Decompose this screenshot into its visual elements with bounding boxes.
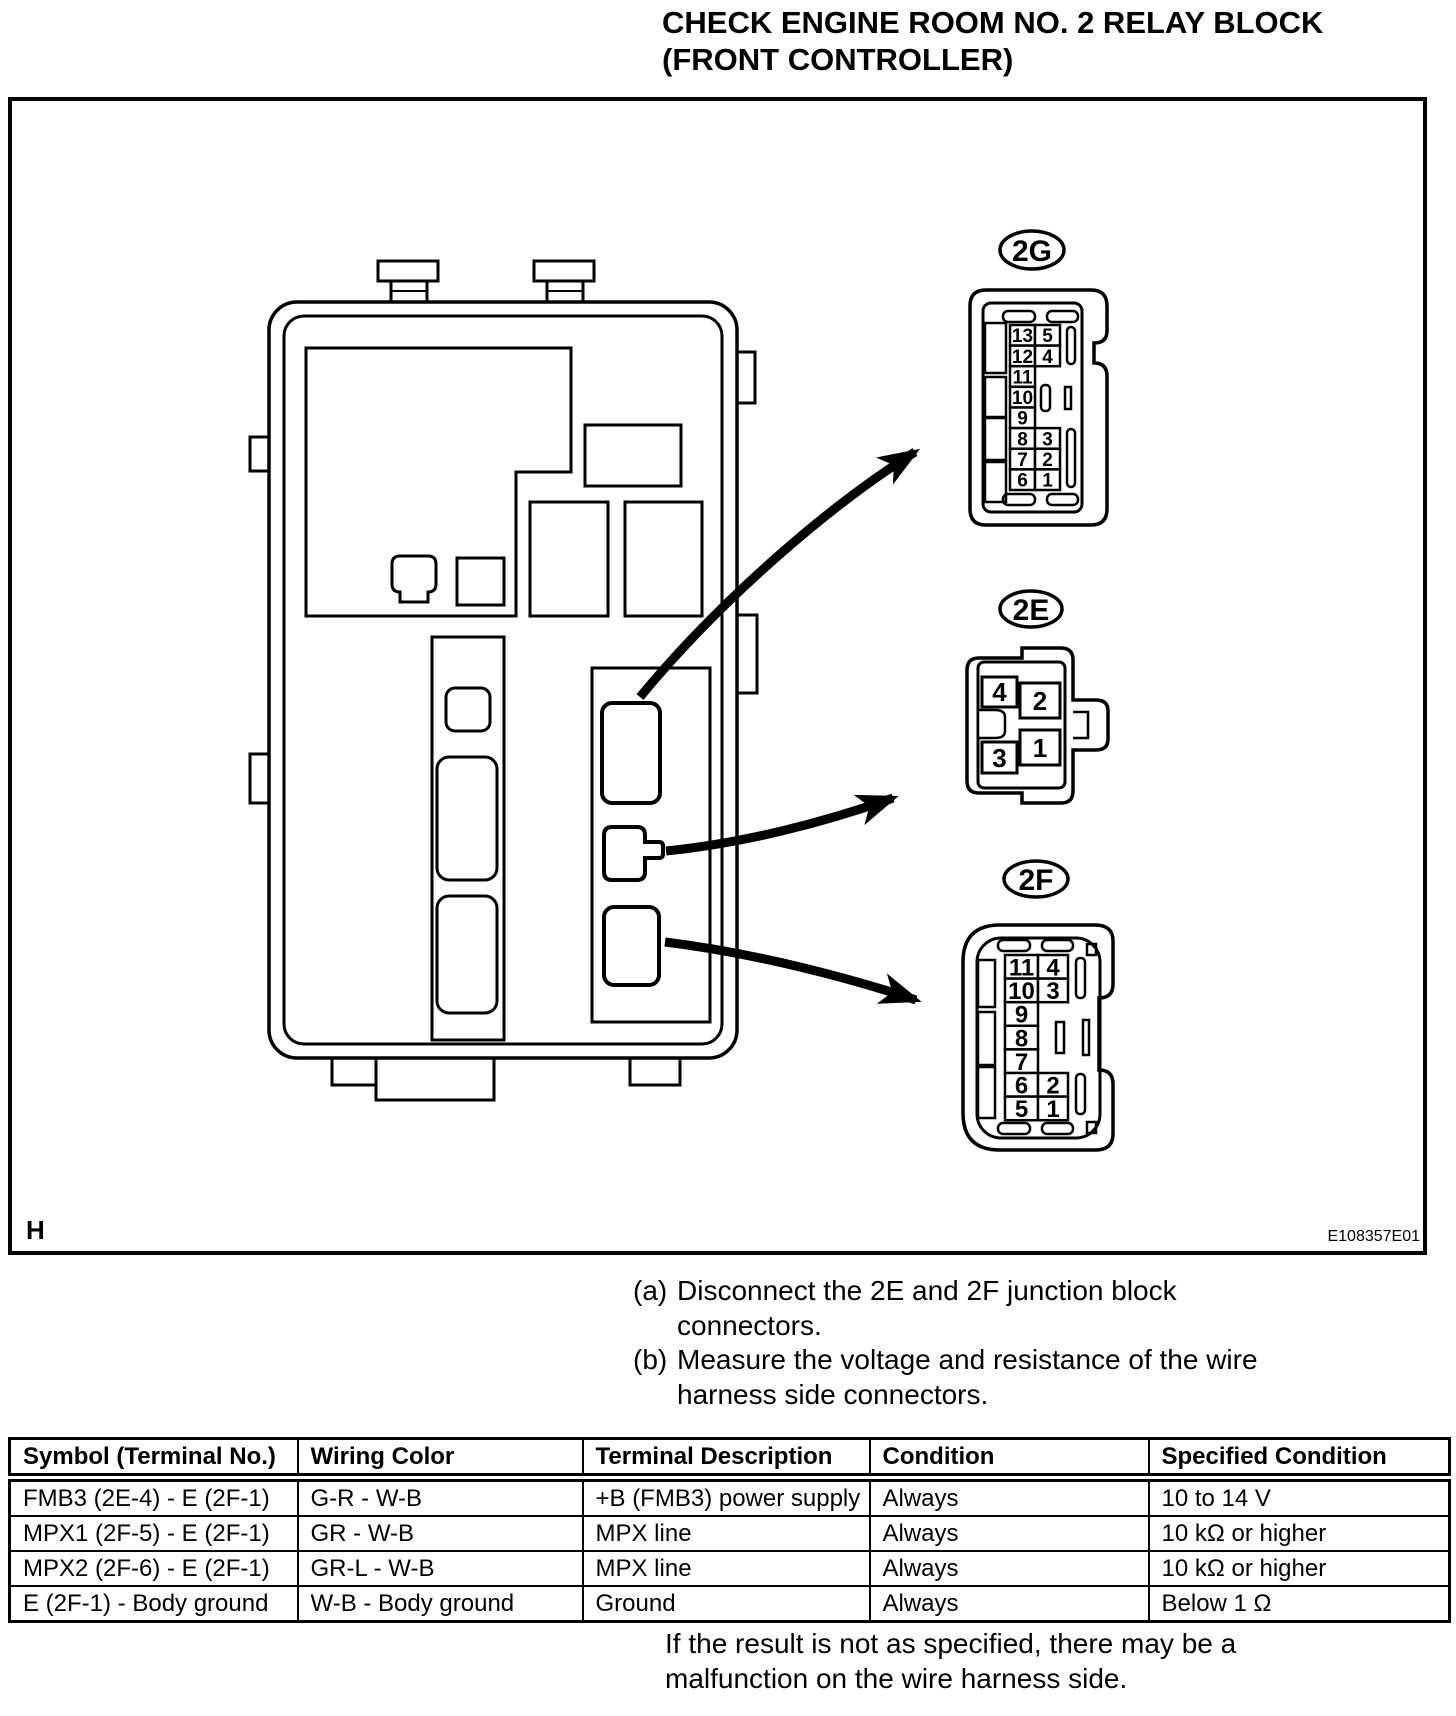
pin-number: 13	[1012, 326, 1033, 347]
col-header-condition: Condition	[870, 1439, 1149, 1478]
connector-2e: 2E 4 2 3 1	[967, 591, 1108, 803]
cell-wiring-color: G-R - W-B	[298, 1478, 583, 1517]
arrows	[640, 452, 916, 1000]
pin-number: 4	[1042, 347, 1053, 368]
step-b-line-1: (b) Measure the voltage and resistance o…	[633, 1343, 1258, 1378]
relay-cavity	[530, 502, 608, 616]
arrow-to-2g	[640, 452, 915, 697]
table-header-row: Symbol (Terminal No.) Wiring Color Termi…	[10, 1439, 1450, 1478]
slot	[1083, 1020, 1089, 1055]
connector-2e-socket-detail	[1073, 712, 1088, 738]
cell-condition: Always	[870, 1478, 1149, 1517]
table-row: FMB3 (2E-4) - E (2F-1) G-R - W-B +B (FMB…	[10, 1478, 1450, 1517]
col-header-symbol: Symbol (Terminal No.)	[10, 1439, 298, 1478]
pin-number: 6	[1017, 471, 1028, 492]
cell-specified-condition: 10 kΩ or higher	[1149, 1551, 1450, 1586]
slot	[1047, 494, 1078, 505]
pin-number: 12	[1012, 347, 1033, 368]
relay-cavity-small	[392, 556, 436, 602]
table-row: MPX1 (2F-5) - E (2F-1) GR - W-B MPX line…	[10, 1516, 1450, 1551]
connector-2g-label: 2G	[1012, 235, 1052, 268]
slot	[1067, 429, 1075, 487]
relay-block-side-tab	[737, 615, 757, 693]
relay-block-side-tab	[250, 437, 269, 471]
connector-2e-label: 2E	[1013, 594, 1050, 627]
col-header-specified-condition: Specified Condition	[1149, 1439, 1450, 1478]
relay-cavity	[625, 502, 702, 616]
connector-2g-pin-grid: 13 12 11 10 9 8 7 6 5 4 3 2 1	[1010, 325, 1060, 492]
cell-wiring-color: GR-L - W-B	[298, 1551, 583, 1586]
cell-condition: Always	[870, 1586, 1149, 1622]
col-header-terminal-description: Terminal Description	[583, 1439, 870, 1478]
cell-condition: Always	[870, 1516, 1149, 1551]
step-a-text: connectors.	[677, 1309, 822, 1344]
relay-block	[250, 261, 757, 1100]
cell-symbol: E (2F-1) - Body ground	[10, 1586, 298, 1622]
connector-2f-pin-grid: 11 10 9 8 7 6 5 4 3 2 1	[1005, 955, 1068, 1124]
relay-socket-2e	[604, 827, 663, 880]
slot	[998, 1123, 1030, 1134]
figure-frame	[10, 99, 1425, 1253]
cell-terminal-description: MPX line	[583, 1516, 870, 1551]
cell-symbol: FMB3 (2E-4) - E (2F-1)	[10, 1478, 298, 1517]
slot	[1076, 1074, 1085, 1114]
slot	[978, 1067, 995, 1118]
cell-terminal-description: +B (FMB3) power supply	[583, 1478, 870, 1517]
relay-cavity	[585, 425, 681, 486]
figure-code: E108357E01	[1327, 1228, 1420, 1245]
cell-terminal-description: MPX line	[583, 1551, 870, 1586]
step-b-line-2: harness side connectors.	[633, 1378, 1258, 1413]
relay-block-top-tab	[534, 261, 594, 302]
relay-block-bottom-tab	[376, 1058, 494, 1100]
pin-number: 8	[1017, 429, 1028, 450]
step-a-line-2: connectors.	[633, 1309, 1258, 1344]
pin-number: 1	[1033, 733, 1047, 763]
cell-condition: Always	[870, 1551, 1149, 1586]
relay-center-strip	[432, 637, 504, 1040]
connector-2f: 2F	[963, 861, 1113, 1150]
slot	[1065, 387, 1071, 409]
slot	[985, 323, 1006, 373]
arrow-to-2f	[665, 942, 916, 1000]
pin-number: 4	[992, 677, 1007, 707]
relay-socket-2g	[602, 703, 660, 803]
slot	[978, 1012, 995, 1065]
step-a-line-1: (a) Disconnect the 2E and 2F junction bl…	[633, 1274, 1258, 1309]
slot	[1042, 940, 1073, 951]
slot	[1076, 958, 1085, 998]
figure-corner-label: H	[26, 1215, 45, 1245]
cell-specified-condition: 10 kΩ or higher	[1149, 1516, 1450, 1551]
note-line-2: malfunction on the wire harness side.	[665, 1661, 1236, 1696]
manual-page: CHECK ENGINE ROOM NO. 2 RELAY BLOCK (FRO…	[0, 0, 1456, 1716]
cell-wiring-color: W-B - Body ground	[298, 1586, 583, 1622]
slot	[1042, 1123, 1073, 1134]
col-header-wiring-color: Wiring Color	[298, 1439, 583, 1478]
relay-block-top-tab	[378, 261, 438, 302]
table-row: MPX2 (2F-6) - E (2F-1) GR-L - W-B MPX li…	[10, 1551, 1450, 1586]
relay-block-side-tab	[250, 754, 269, 803]
relay-cavity-small	[457, 558, 504, 605]
cell-symbol: MPX2 (2F-6) - E (2F-1)	[10, 1551, 298, 1586]
step-b-text: Measure the voltage and resistance of th…	[677, 1343, 1258, 1378]
slot	[985, 418, 1006, 460]
slot	[1047, 311, 1078, 322]
connector-2e-key-notch	[978, 710, 1005, 738]
slot	[1003, 311, 1035, 322]
slot	[985, 377, 1006, 417]
pin-number: 3	[1046, 978, 1059, 1005]
pin-number: 9	[1017, 409, 1028, 430]
pin-number: 7	[1017, 450, 1028, 471]
arrow-to-2e	[666, 798, 893, 851]
step-a-marker: (a)	[633, 1274, 677, 1309]
step-a-text: Disconnect the 2E and 2F junction block	[677, 1274, 1177, 1309]
procedure-steps: (a) Disconnect the 2E and 2F junction bl…	[633, 1274, 1258, 1412]
cell-specified-condition: Below 1 Ω	[1149, 1586, 1450, 1622]
pin-number: 10	[1012, 388, 1033, 409]
pin-number: 5	[1015, 1096, 1028, 1123]
pin-number: 5	[1042, 326, 1053, 347]
pin-number: 11	[1012, 367, 1033, 388]
connector-2g: 2G	[970, 231, 1107, 525]
step-b-marker: (b)	[633, 1343, 677, 1378]
spec-table: Symbol (Terminal No.) Wiring Color Termi…	[8, 1437, 1451, 1623]
pin-number: 1	[1042, 471, 1053, 492]
cell-wiring-color: GR - W-B	[298, 1516, 583, 1551]
relay-socket-2f	[604, 907, 659, 985]
table-row: E (2F-1) - Body ground W-B - Body ground…	[10, 1586, 1450, 1622]
slot	[1003, 494, 1035, 505]
note-line-1: If the result is not as specified, there…	[665, 1626, 1236, 1661]
slot	[1056, 1022, 1064, 1053]
relay-block-bottom-tab	[630, 1058, 680, 1085]
step-b-text: harness side connectors.	[677, 1378, 988, 1413]
cell-specified-condition: 10 to 14 V	[1149, 1478, 1450, 1517]
slot	[998, 940, 1030, 951]
cell-terminal-description: Ground	[583, 1586, 870, 1622]
relay-block-side-tab	[737, 352, 755, 403]
slot	[1041, 385, 1050, 411]
slot	[978, 960, 995, 1007]
pin-number: 3	[1042, 429, 1053, 450]
relay-block-bottom-tab	[332, 1058, 376, 1085]
result-note: If the result is not as specified, there…	[665, 1626, 1236, 1696]
cell-symbol: MPX1 (2F-5) - E (2F-1)	[10, 1516, 298, 1551]
pin-number: 2	[1033, 686, 1047, 716]
slot	[1067, 327, 1075, 364]
pin-number: 1	[1046, 1096, 1059, 1123]
pin-number: 2	[1042, 450, 1053, 471]
pin-number: 3	[992, 743, 1006, 773]
connector-2f-label: 2F	[1018, 864, 1053, 897]
